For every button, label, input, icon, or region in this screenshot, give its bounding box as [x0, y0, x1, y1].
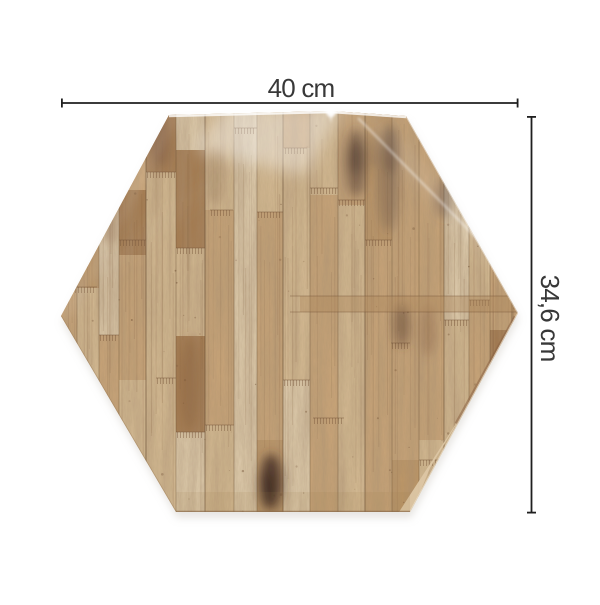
svg-text:40 cm: 40 cm [268, 73, 335, 103]
svg-text:34,6 cm: 34,6 cm [535, 275, 565, 362]
